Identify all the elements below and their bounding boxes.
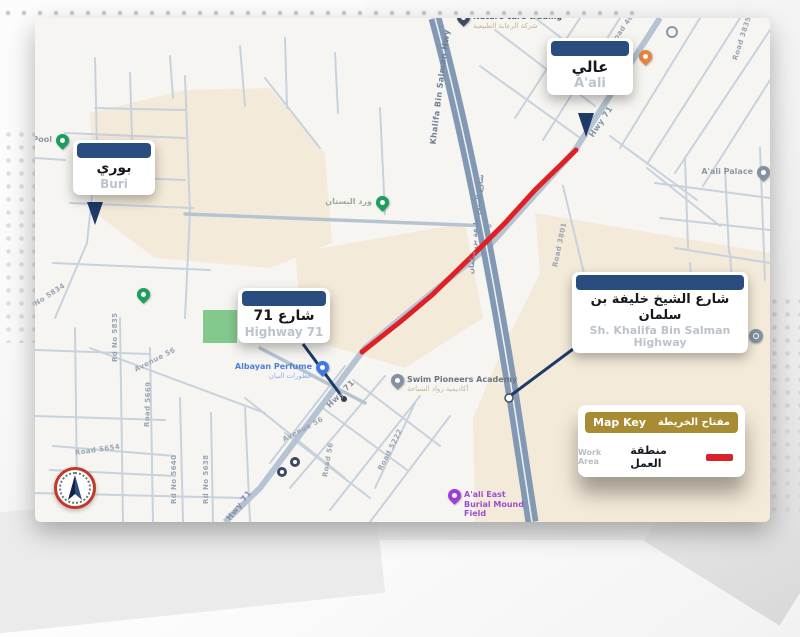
- dot-pattern: [2, 128, 38, 343]
- callout-english: Sh. Khalifa Bin Salman Highway: [572, 325, 748, 349]
- poi-label: ورد البستان: [325, 197, 372, 207]
- callout-header: [551, 41, 629, 56]
- callout-header: [242, 291, 326, 306]
- work-area-swatch: [706, 454, 733, 461]
- map-key-row: Work Area منطقة العمل: [578, 433, 745, 470]
- poi-name: A'ali Palace: [701, 167, 753, 177]
- map-card: Nature care tradingشركة الرعاية الطبيعية…: [35, 18, 770, 522]
- callout-header: [576, 275, 744, 290]
- callout-buri: بوري Buri: [73, 140, 155, 195]
- poi-name: ورد البستان: [325, 197, 372, 207]
- map-key-title-en: Map Key: [593, 416, 646, 429]
- poi-name-arabic: أكاديمية رواد السباحة: [407, 385, 517, 393]
- road-label: Road 5669: [143, 381, 153, 427]
- map-key: Map Key مفتاح الخريطة Work Area منطقة ال…: [578, 405, 745, 477]
- advisory-graphic: { "page": {"type": "roadworks-advisory-m…: [0, 0, 800, 540]
- burial-mounds-pin-icon: [749, 329, 763, 343]
- road-label: Rd No 5638: [202, 455, 210, 504]
- poi-label: A'ali Palace: [701, 167, 753, 177]
- poi-label: Swim Pioneers Academyأكاديمية رواد السبا…: [407, 375, 517, 393]
- road-label: Rd No 5835: [111, 313, 119, 362]
- poi-label: Pool: [35, 135, 52, 145]
- transit-stop-2-pin-icon: [290, 457, 300, 467]
- callout-english: A'ali: [547, 77, 633, 91]
- transit-stop-1-pin-icon: [277, 467, 287, 477]
- callout-arabic: شارع الشيخ خليفة بن سلمان: [572, 292, 748, 325]
- callout-arabic: بوري: [73, 160, 155, 178]
- callout-arabic: عالي: [547, 58, 633, 77]
- poi-name-arabic: شركة الرعاية الطبيعية: [473, 22, 562, 30]
- callout-arabic: شارع 71: [238, 308, 330, 326]
- callout-highway-71: شارع 71 Highway 71: [238, 288, 330, 343]
- poi-name: Swim Pioneers Academy: [407, 375, 517, 385]
- callout-english: Highway 71: [238, 326, 330, 339]
- poi-name: Albayan Perfume: [235, 362, 312, 372]
- compass-icon: [54, 467, 96, 509]
- map-key-title-ar: مفتاح الخريطة: [658, 417, 730, 428]
- poi-label: Albayan Perfumeعطورات البيان: [235, 362, 312, 380]
- map-target-pin-icon: [666, 26, 678, 38]
- callout-khalifa-highway: شارع الشيخ خليفة بن سلمان Sh. Khalifa Bi…: [572, 272, 748, 353]
- poi-name-arabic: عطورات البيان: [235, 372, 312, 380]
- callout-aali: عالي A'ali: [547, 38, 633, 95]
- road-label: Rd No 5640: [170, 455, 178, 504]
- callout-english: Buri: [73, 178, 155, 191]
- work-area-label-ar: منطقة العمل: [630, 444, 697, 470]
- map-key-header: Map Key مفتاح الخريطة: [585, 412, 738, 433]
- poi-label: Nature care tradingشركة الرعاية الطبيعية: [473, 18, 562, 30]
- poi-name: Pool: [35, 135, 52, 145]
- poi-name: A'ali East Burial Mound Field: [464, 490, 534, 519]
- work-area-label-en: Work Area: [578, 448, 622, 466]
- compass-needle: [57, 470, 93, 506]
- callout-header: [77, 143, 151, 158]
- poi-label: A'ali East Burial Mound Field: [464, 490, 534, 519]
